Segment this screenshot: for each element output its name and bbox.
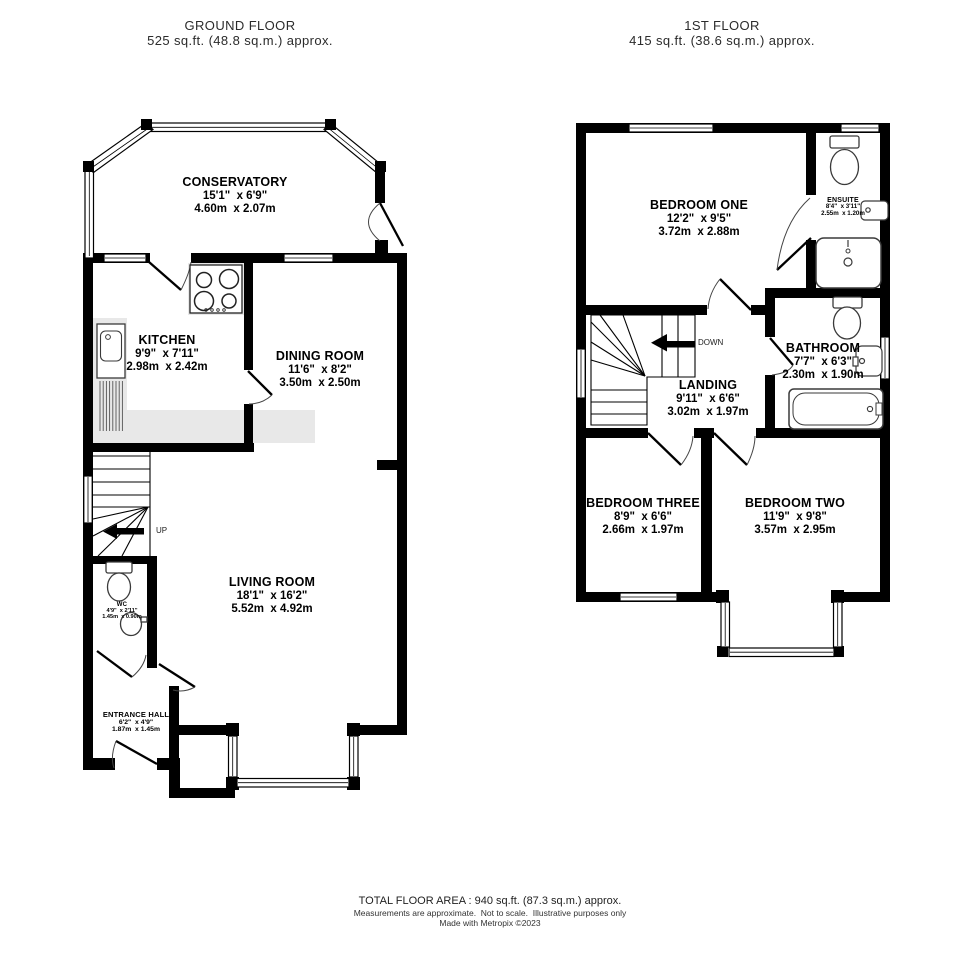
living-room-label: LIVING ROOM 18'1" x 16'2" 5.52m x 4.92m	[229, 576, 315, 616]
down-arrow-icon	[651, 334, 695, 352]
up-label: UP	[156, 526, 167, 535]
bathroom-label: BATHROOM 7'7" x 6'3" 2.30m x 1.90m	[782, 342, 863, 382]
floorplan-drawing	[0, 0, 980, 956]
total-floor-area: TOTAL FLOOR AREA : 940 sq.ft. (87.3 sq.m…	[190, 895, 790, 908]
dining-room-label: DINING ROOM 11'6" x 8'2" 3.50m x 2.50m	[276, 350, 364, 390]
first-floor-header: 1ST FLOOR 415 sq.ft. (38.6 sq.m.) approx…	[629, 18, 815, 48]
disclaimer: Measurements are approximate. Not to sca…	[190, 908, 790, 918]
ground-stairs	[93, 443, 150, 556]
bathtub-icon	[789, 389, 883, 429]
kitchen-label: KITCHEN 9'9" x 7'11" 2.98m x 2.42m	[126, 334, 207, 374]
ground-floor-area: 525 sq.ft. (48.8 sq.m.) approx.	[147, 33, 333, 48]
ground-floor-header: GROUND FLOOR 525 sq.ft. (48.8 sq.m.) app…	[147, 18, 333, 48]
ensuite-toilet-icon	[830, 136, 859, 185]
entrance-hall-label: ENTRANCE HALL 6'2" x 4'9" 1.87m x 1.45m	[103, 711, 169, 734]
credit: Made with Metropix ©2023	[190, 918, 790, 928]
bedroom-three-label: BEDROOM THREE 8'9" x 6'6" 2.66m x 1.97m	[586, 497, 700, 537]
bathroom-toilet-icon	[833, 297, 862, 339]
ground-floor-plan	[83, 119, 407, 798]
ensuite-label: ENSUITE 8'4" x 3'11" 2.55m x 1.20m	[821, 197, 865, 218]
bedroom-two-label: BEDROOM TWO 11'9" x 9'8" 3.57m x 2.95m	[745, 497, 845, 537]
floorplan-canvas: GROUND FLOOR 525 sq.ft. (48.8 sq.m.) app…	[0, 0, 980, 956]
conservatory-label: CONSERVATORY 15'1" x 6'9" 4.60m x 2.07m	[182, 176, 287, 216]
bedroom-one-label: BEDROOM ONE 12'2" x 9'5" 3.72m x 2.88m	[650, 199, 748, 239]
first-floor-area: 415 sq.ft. (38.6 sq.m.) approx.	[629, 33, 815, 48]
first-floor-bay-window	[716, 590, 844, 657]
footer: TOTAL FLOOR AREA : 940 sq.ft. (87.3 sq.m…	[190, 895, 790, 928]
ground-bay-window	[226, 723, 360, 790]
landing-label: LANDING 9'11" x 6'6" 3.02m x 1.97m	[667, 379, 748, 419]
hob-icon	[190, 265, 242, 313]
ensuite-shower-icon	[816, 238, 881, 288]
down-label: DOWN	[698, 338, 723, 347]
wc-label: WC 4'9" x 2'11" 1.45m x 0.90m	[102, 602, 142, 620]
wc-toilet-icon	[106, 562, 132, 601]
ground-floor-title: GROUND FLOOR	[147, 18, 333, 33]
first-floor-title: 1ST FLOOR	[629, 18, 815, 33]
